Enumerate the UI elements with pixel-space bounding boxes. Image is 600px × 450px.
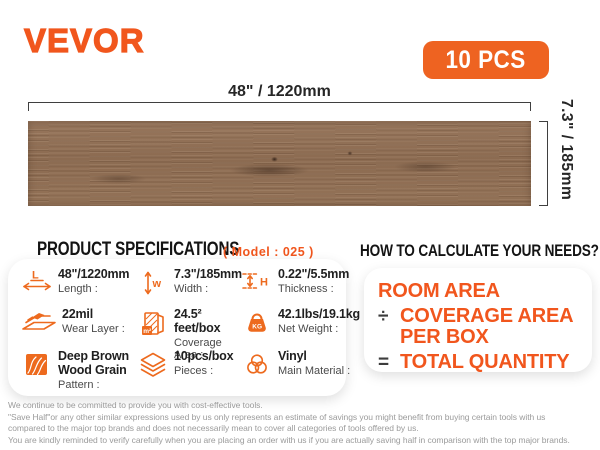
pattern-icon (20, 349, 54, 377)
model-number: ( Model : 025 ) (223, 245, 314, 259)
spec-label: Length : (58, 283, 129, 295)
calc-row-coverage: ÷ COVERAGE AREA PER BOX (378, 306, 586, 349)
spec-value: Vinyl (278, 349, 350, 363)
specifications-grid: L 48"/1220mm Length : (8, 259, 346, 396)
wear-layer-icon (20, 307, 58, 335)
spec-label: Pieces : (174, 365, 233, 377)
spec-value: 7.3"/185mm (174, 267, 242, 281)
calculation-card: ROOM AREA ÷ COVERAGE AREA PER BOX = TOTA… (364, 268, 592, 372)
spec-value: 0.22"/5.5mm (278, 267, 349, 281)
spec-item-main-material: Vinyl Main Material : (240, 349, 360, 391)
spec-value: 48"/1220mm (58, 267, 129, 281)
spec-item-pieces: 10pcs/box Pieces : (136, 349, 240, 391)
net-weight-icon: KG (240, 307, 274, 336)
material-icon (240, 349, 274, 377)
spec-label: Main Material : (278, 365, 350, 377)
width-dimension-bracket (539, 121, 548, 206)
disclaimer-line: You are kindly reminded to verify carefu… (8, 435, 600, 447)
spec-label: Width : (174, 283, 242, 295)
calculate-heading: HOW TO CALCULATE YOUR NEEDS? (360, 241, 599, 261)
thickness-icon: H (240, 267, 274, 293)
room-area-text: ROOM AREA (378, 281, 500, 303)
svg-text:m²: m² (143, 328, 152, 335)
svg-text:KG: KG (252, 323, 262, 330)
spec-item-width: w 7.3"/185mm Width : (136, 267, 240, 307)
svg-text:w: w (152, 278, 162, 290)
pieces-icon (136, 349, 170, 378)
length-dimension-bracket (28, 102, 531, 111)
spec-value: 10pcs/box (174, 349, 233, 363)
disclaimer: We continue to be committed to provide y… (8, 400, 600, 446)
spec-value: 22mil (62, 307, 125, 321)
spec-item-pattern: Deep Brown Wood Grain Pattern : (20, 349, 136, 391)
spec-value: 24.5² feet/box (174, 307, 240, 335)
spec-label: Wear Layer : (62, 323, 125, 335)
plank-length-label: 48" / 1220mm (28, 83, 531, 101)
calc-row-total: = TOTAL QUANTITY (378, 352, 586, 374)
spec-label: Pattern : (58, 379, 136, 391)
spec-label: Net Weight : (278, 323, 360, 335)
pcs-count-badge: 10 PCS (423, 41, 549, 79)
specifications-heading: PRODUCT SPECIFICATIONS (37, 239, 239, 261)
plank-photo (28, 121, 531, 206)
divide-sign: ÷ (378, 306, 400, 328)
equals-sign: = (378, 352, 400, 374)
plank-width-label: 7.3" / 185mm (557, 99, 575, 231)
page: VEVOR 10 PCS 48" / 1220mm 7.3" / 185mm P… (0, 0, 600, 450)
disclaimer-line: We continue to be committed to provide y… (8, 400, 600, 412)
disclaimer-line: compared to the major top brands and doe… (8, 423, 600, 435)
width-icon: w (136, 267, 170, 297)
coverage-area-text: COVERAGE AREA PER BOX (400, 306, 582, 349)
spec-item-thickness: H 0.22"/5.5mm Thickness : (240, 267, 360, 307)
coverage-area-icon: m² (136, 307, 170, 339)
svg-text:H: H (260, 277, 268, 289)
spec-value: 42.1lbs/19.1kg (278, 307, 360, 321)
spec-item-wear-layer: 22mil Wear Layer : (20, 307, 136, 349)
vevor-logo: VEVOR (24, 22, 145, 60)
total-quantity-text: TOTAL QUANTITY (400, 352, 569, 374)
specifications-card: L 48"/1220mm Length : (8, 259, 346, 396)
spec-item-length: L 48"/1220mm Length : (20, 267, 136, 307)
disclaimer-line: "Save Half"or any other similar expressi… (8, 412, 600, 424)
spec-item-coverage-area: m² 24.5² feet/box Coverage Area : (136, 307, 240, 349)
calc-row-room-area: ROOM AREA (378, 281, 586, 303)
spec-value: Deep Brown Wood Grain (58, 349, 136, 377)
spec-item-net-weight: KG 42.1lbs/19.1kg Net Weight : (240, 307, 360, 349)
spec-label: Thickness : (278, 283, 349, 295)
pcs-count-label: 10 PCS (446, 46, 526, 75)
length-icon: L (20, 267, 54, 291)
